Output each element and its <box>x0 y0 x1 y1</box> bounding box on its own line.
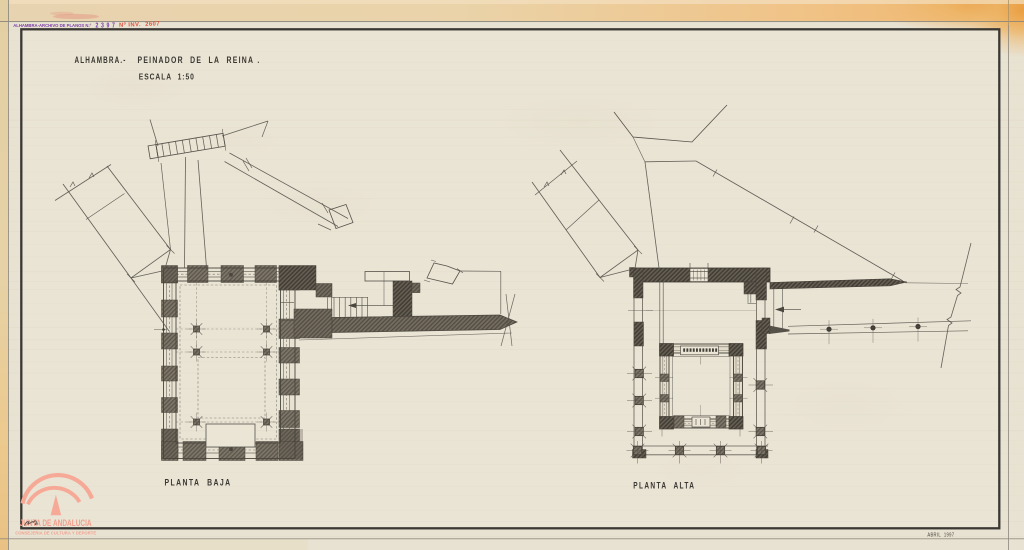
svg-text:PLANTA BAJA: PLANTA BAJA <box>165 478 232 488</box>
svg-text:ALHAMBRA-ARCHIVO DE PLANOS N.º: ALHAMBRA-ARCHIVO DE PLANOS N.º <box>13 23 91 28</box>
svg-text:PLANTA ALTA: PLANTA ALTA <box>633 481 695 491</box>
svg-text:ALHAMBRA.-: ALHAMBRA.- <box>75 55 127 65</box>
svg-text:CONSEJERIA DE CULTURA Y DEPORT: CONSEJERIA DE CULTURA Y DEPORTE <box>15 530 97 536</box>
svg-text:ABRIL 1997: ABRIL 1997 <box>927 532 954 538</box>
svg-text:PEINADOR DE LA REINA .: PEINADOR DE LA REINA . <box>138 55 261 65</box>
svg-text:ESCALA 1:50: ESCALA 1:50 <box>139 71 195 81</box>
svg-text:2 3 9 7: 2 3 9 7 <box>96 20 116 29</box>
